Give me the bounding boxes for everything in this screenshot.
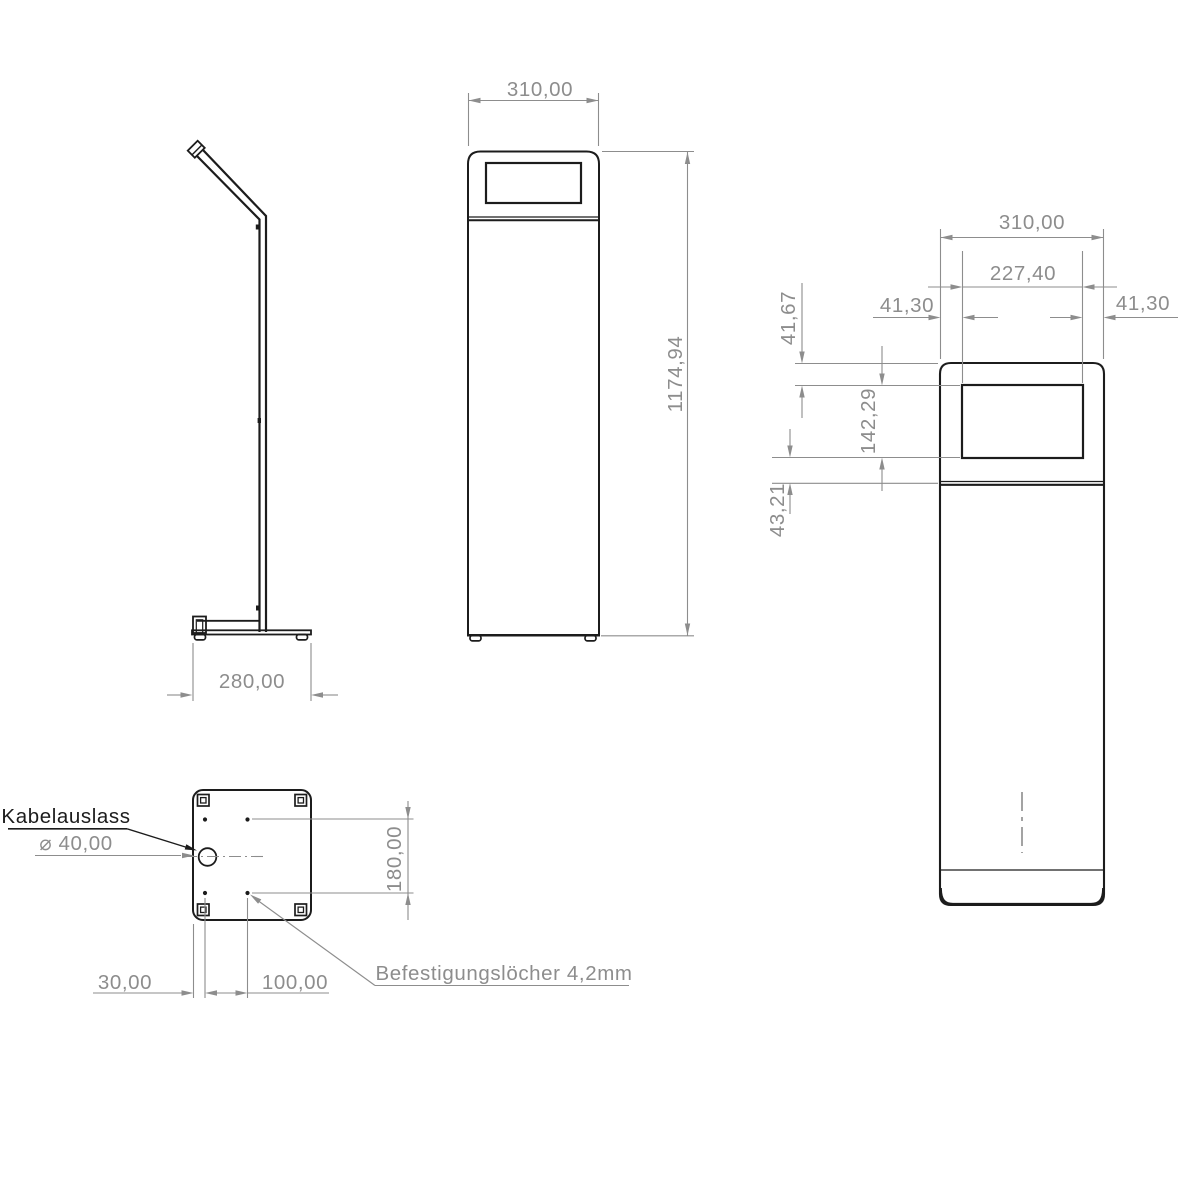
dim-cutout-height-text: 142,29 <box>859 388 880 454</box>
dim-cutout-width-text: 227,40 <box>990 264 1056 285</box>
mounting-hole <box>203 817 207 821</box>
dim-side-base-text: 280,00 <box>219 672 285 693</box>
mounting-hole <box>245 891 249 895</box>
side-view-outline <box>188 141 311 640</box>
mounting-hole <box>245 817 249 821</box>
front-view-outline <box>468 152 599 641</box>
technical-drawing-sheet: 310,00 1174,94 280,00 310,00 227,40 41,3… <box>0 0 1200 1200</box>
holder-cap <box>188 141 205 158</box>
dimension-right-margin <box>1050 315 1178 320</box>
dim-front-height-text: 1174,94 <box>666 336 687 413</box>
dim-detail-width-text: 310,00 <box>999 213 1065 234</box>
cable-diameter-text: ⌀ 40,00 <box>39 834 113 855</box>
dimension-cutout-to-seam <box>772 429 938 514</box>
dim-front-width-text: 310,00 <box>507 80 573 101</box>
dim-hole-spacing-y-text: 180,00 <box>385 826 406 892</box>
dim-edge-to-hole-text: 30,00 <box>98 973 152 994</box>
dim-left-margin-text: 41,30 <box>880 296 934 317</box>
mounting-hole <box>203 891 207 895</box>
detail-screen-cutout <box>962 385 1083 458</box>
dim-top-margin-text: 41,67 <box>779 291 800 345</box>
detail-view-outline <box>940 363 1104 905</box>
cable-outlet-label: Kabelauslass <box>1 807 130 828</box>
mounting-holes-label: Befestigungslöcher 4,2mm <box>375 964 632 985</box>
drawing-linework <box>0 0 1200 1200</box>
dim-hole-spacing-x-text: 100,00 <box>262 973 328 994</box>
dimension-detail-width <box>941 229 1104 359</box>
front-screen-cutout <box>486 163 581 203</box>
dim-right-margin-text: 41,30 <box>1116 294 1170 315</box>
dimension-front-width <box>469 93 599 146</box>
dim-cutout-to-seam-text: 43,21 <box>768 483 789 537</box>
